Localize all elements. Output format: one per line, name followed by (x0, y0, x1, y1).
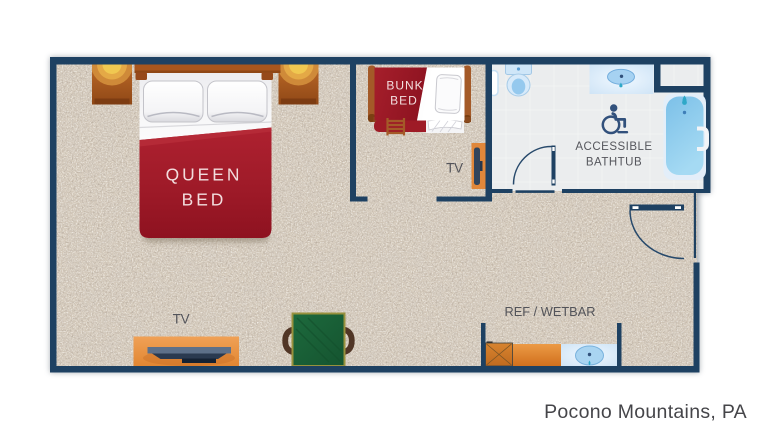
svg-text:ACCESSIBLE: ACCESSIBLE (575, 141, 652, 153)
svg-text:BED: BED (390, 94, 418, 108)
svg-text:TV: TV (173, 312, 190, 327)
svg-text:QUEEN: QUEEN (166, 165, 243, 185)
svg-text:BATHTUB: BATHTUB (586, 157, 642, 169)
svg-text:BED: BED (182, 190, 227, 210)
svg-text:REF / WETBAR: REF / WETBAR (504, 304, 595, 319)
svg-text:Pocono Mountains, PA: Pocono Mountains, PA (544, 401, 747, 423)
svg-text:BUNK: BUNK (386, 79, 423, 93)
svg-text:TV: TV (446, 161, 463, 176)
